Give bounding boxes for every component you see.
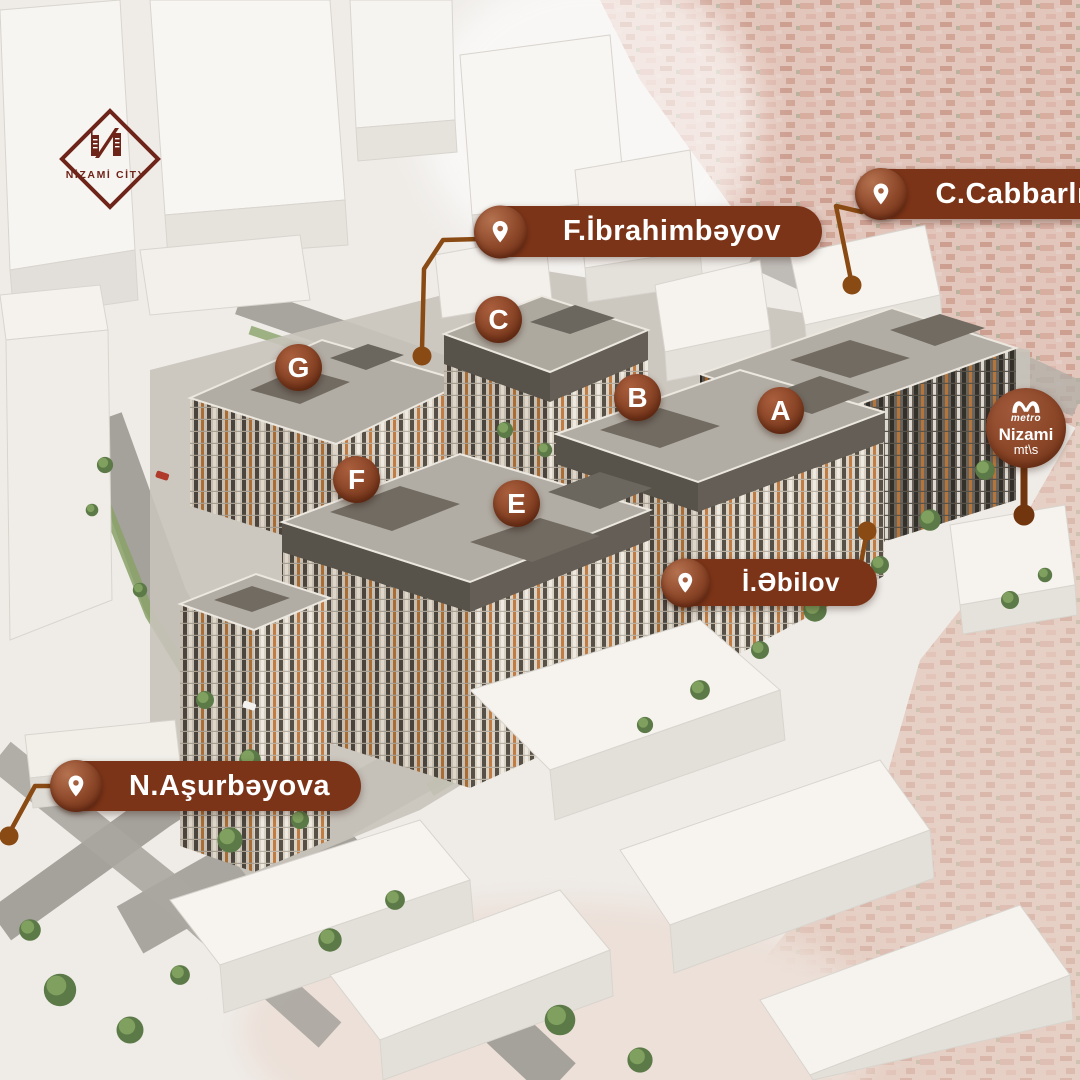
street-label-n-asurbeyova: N.Aşurbəyova [52, 761, 361, 811]
map-pin-icon [50, 760, 102, 812]
map-pin-icon [474, 205, 527, 258]
building-badge-b: B [614, 374, 661, 421]
building-badge-c: C [475, 296, 522, 343]
street-label-c-cabbarli: C.Cabbarlı [857, 169, 1080, 219]
metro-station-name: Nizami [999, 426, 1054, 444]
street-name: F.İbrahimbəyov [530, 215, 822, 248]
street-label-i-ebilov: İ.Əbilov [663, 559, 877, 606]
building-badge-a: A [757, 387, 804, 434]
building-front-tower-render [180, 574, 330, 872]
map-pin-icon [661, 558, 710, 607]
building-badge-e: E [493, 480, 540, 527]
street-label-f-ibrahimbeyov: F.İbrahimbəyov [476, 206, 822, 257]
logo-emblem [87, 122, 125, 162]
street-name: N.Aşurbəyova [106, 770, 361, 803]
metro-station-type: mt\s [1014, 443, 1039, 457]
metro-brand-text: metro [1011, 414, 1041, 425]
map-pin-icon [855, 168, 907, 220]
nizami-city-logo: NİZAMİ CİTY [46, 95, 166, 215]
metro-logo-icon [1011, 399, 1041, 413]
street-name: C.Cabbarlı [911, 178, 1080, 211]
masterplan-poster: NİZAMİ CİTY F.İbrahimbəyov C.Cabbarlı İ.… [0, 0, 1080, 1080]
street-name: İ.Əbilov [713, 567, 877, 598]
building-badge-f: F [333, 456, 380, 503]
metro-station-badge: metro Nizami mt\s [986, 388, 1066, 468]
logo-title: NİZAMİ CİTY [46, 169, 166, 181]
building-badge-g: G [275, 344, 322, 391]
